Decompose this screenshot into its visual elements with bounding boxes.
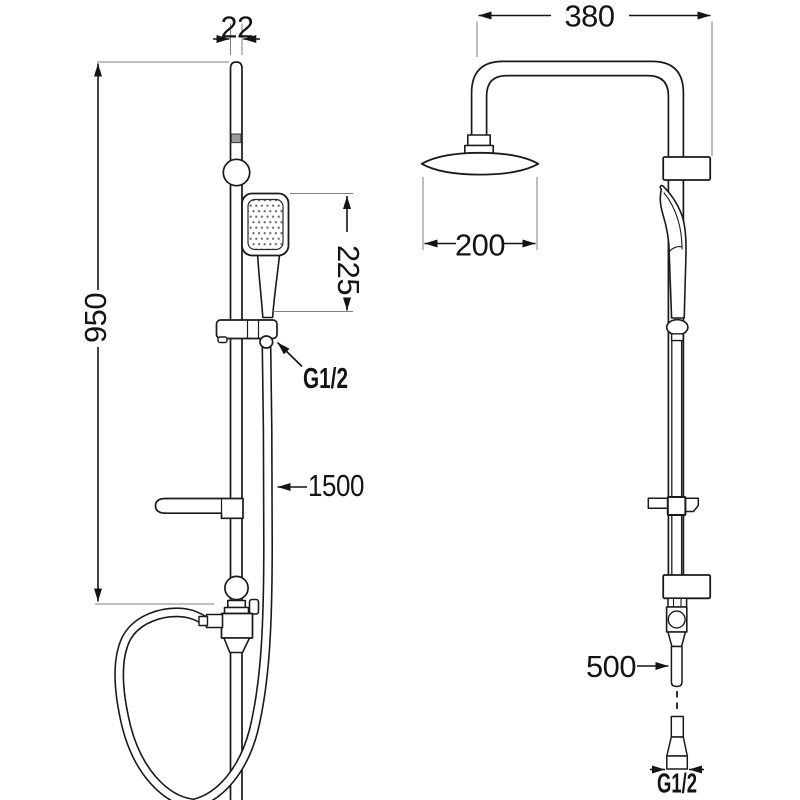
- wall-bracket-top: [663, 157, 710, 180]
- diverter-body: [222, 614, 253, 639]
- shower-technical-drawing: 22 950 225 G1/2 1500 380 200 500 G1/2: [0, 0, 800, 800]
- dim-label-rail-diameter: 22: [221, 10, 254, 45]
- handshower-nozzle-face: [248, 200, 283, 250]
- handshower-handle-front: [258, 253, 280, 318]
- wall-bracket-bottom: [663, 575, 710, 598]
- dim-label-rail-height: 950: [78, 293, 113, 343]
- rail-knob: [223, 159, 249, 185]
- dim-label-arm-span: 380: [565, 0, 615, 34]
- dimension-labels: 22 950 225 G1/2 1500 380 200 500 G1/2: [78, 0, 697, 799]
- supply-hose-segment: [671, 647, 682, 687]
- soap-shelf: [156, 499, 244, 519]
- rainhead-connector-upper: [468, 135, 490, 146]
- right-view: [422, 61, 711, 769]
- diverter-knob: [225, 576, 248, 599]
- inlet-valve: [667, 598, 687, 646]
- dim-label-lower-hose-length: 500: [586, 649, 636, 684]
- diverter-valve: [199, 576, 259, 652]
- shower-hose-loop: [119, 346, 268, 800]
- hose-end-fitting: [667, 717, 688, 770]
- hose-outlet-fitting: [207, 615, 223, 628]
- dim-label-hose-length: 1500: [308, 468, 364, 503]
- leader-g12-hand: [278, 343, 303, 367]
- rail-lock-band: [231, 134, 241, 143]
- overhead-arm-and-rail: [472, 61, 684, 599]
- slider-bracket-side: [648, 497, 698, 515]
- label-connector-thread-bottom: G1/2: [657, 768, 697, 799]
- left-view: [119, 62, 288, 800]
- drawing-canvas: 22 950 225 G1/2 1500 380 200 500 G1/2: [0, 0, 800, 800]
- extension-lines: [95, 22, 712, 605]
- rain-shower-head: [422, 153, 539, 175]
- label-hose-thread-hand: G1/2: [303, 363, 348, 395]
- dim-label-head-diameter: 200: [455, 228, 505, 263]
- hose-connector-nut: [260, 336, 273, 348]
- dim-label-handshower-length: 225: [331, 245, 366, 295]
- diverter-lever: [250, 600, 259, 615]
